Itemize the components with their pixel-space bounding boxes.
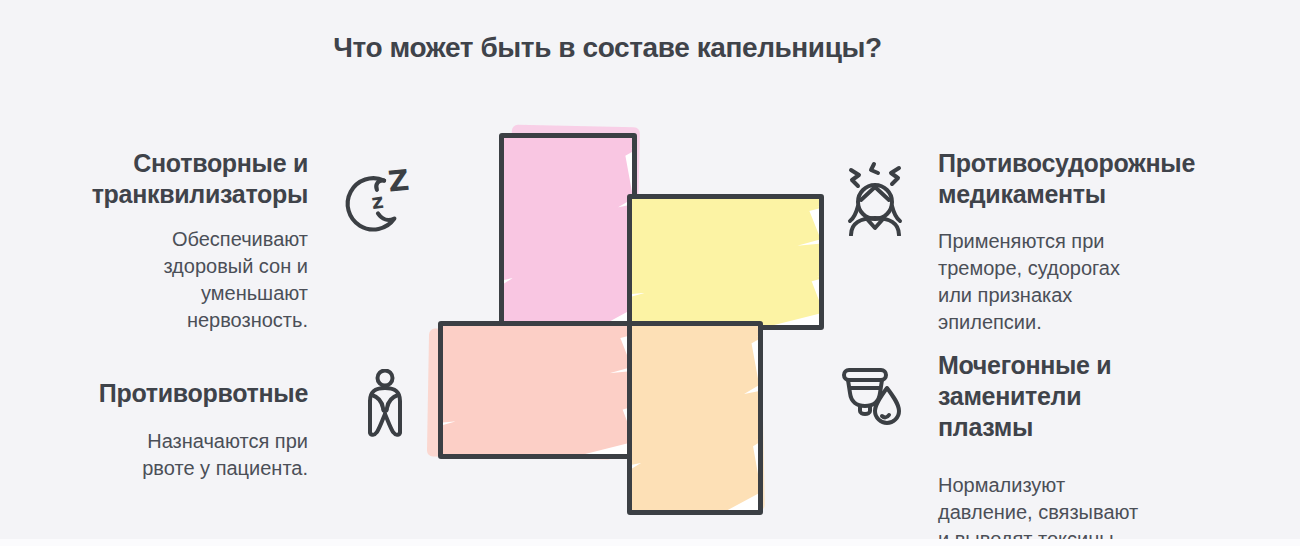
item-block-plasma-diuretics: Мочегонные и заменители плазмы Нормализу…	[938, 350, 1230, 546]
footer-strip	[0, 539, 1300, 546]
nauseous-person-icon	[361, 369, 409, 437]
infographic-canvas: Что может быть в составе капельницы? Сно…	[0, 0, 1300, 546]
tile-anticonvulsants	[627, 194, 824, 330]
svg-text:Z: Z	[387, 163, 411, 199]
page-title: Что может быть в составе капельницы?	[0, 32, 1215, 64]
item-description: Назначаются при рвоте у пациента.	[58, 428, 308, 482]
stressed-person-icon	[845, 160, 909, 236]
tile-antiemetics	[438, 321, 635, 459]
scribble-fill	[632, 199, 819, 325]
scribble-fill	[632, 326, 758, 510]
item-title: Снотворные и транквилизаторы	[58, 148, 308, 210]
item-title: Противосудорожные медикаменты	[938, 148, 1230, 210]
item-title: Противорвотные	[58, 378, 308, 409]
item-block-anticonvulsants: Противосудорожные медикаменты Применяютс…	[938, 148, 1230, 336]
item-description: Нормализуют давление, связывают и выводя…	[938, 472, 1230, 546]
scribble-fill	[504, 138, 632, 326]
moon-zzz-icon: z Z	[341, 160, 419, 238]
svg-text:z: z	[370, 189, 385, 214]
tile-plasma-diuretics	[627, 321, 763, 515]
item-block-antiemetics: Противорвотные Назначаются при рвоте у п…	[58, 378, 308, 482]
cup-drop-icon	[841, 365, 905, 431]
item-description: Применяются при треморе, судорогах или п…	[938, 228, 1230, 336]
item-block-sedatives: Снотворные и транквилизаторы Обеспечиваю…	[58, 148, 308, 334]
item-description: Обеспечивают здоровый сон и уменьшают не…	[58, 226, 308, 334]
item-title: Мочегонные и заменители плазмы	[938, 350, 1230, 443]
tile-sedatives	[499, 133, 637, 331]
scribble-fill	[443, 326, 630, 454]
